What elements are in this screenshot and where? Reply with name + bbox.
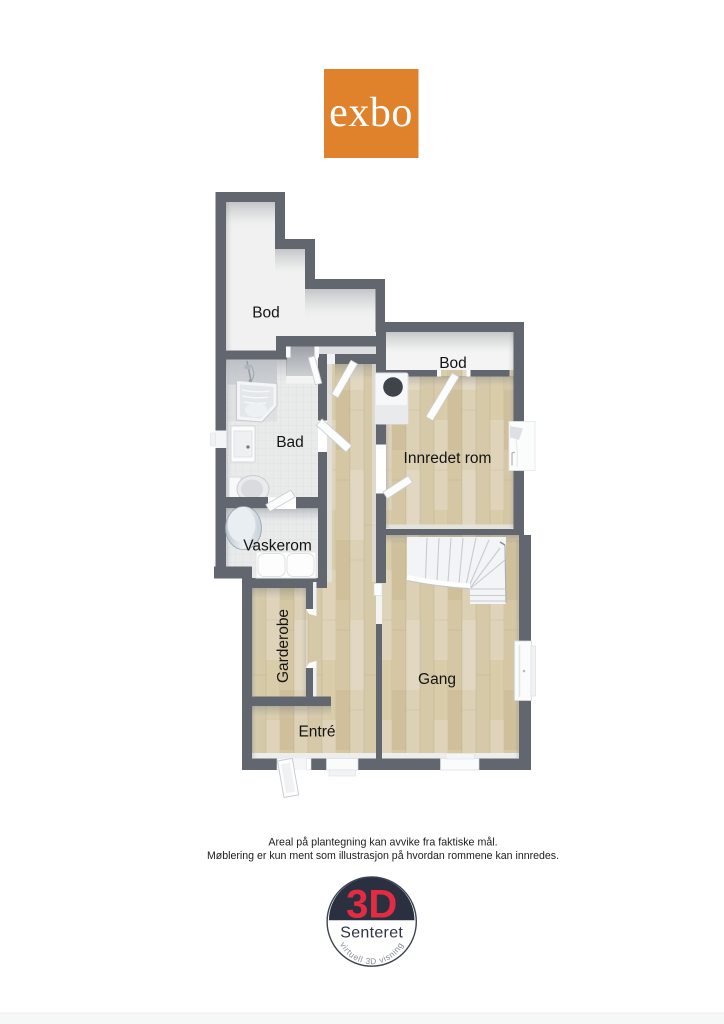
svg-text:Bod: Bod bbox=[439, 355, 467, 372]
svg-text:Entré: Entré bbox=[298, 724, 335, 741]
svg-text:3D: 3D bbox=[346, 883, 397, 927]
svg-text:Senteret: Senteret bbox=[340, 925, 403, 942]
svg-text:Bod: Bod bbox=[252, 305, 280, 322]
svg-text:exbo: exbo bbox=[329, 90, 413, 136]
svg-text:Innredet rom: Innredet rom bbox=[404, 450, 492, 467]
svg-text:Møblering er kun ment som illu: Møblering er kun ment som illustrasjon p… bbox=[207, 850, 559, 862]
svg-text:Garderobe: Garderobe bbox=[275, 609, 292, 683]
svg-text:Gang: Gang bbox=[418, 671, 456, 688]
svg-text:Vaskerom: Vaskerom bbox=[243, 538, 312, 555]
svg-text:Areal på plantegning kan avvik: Areal på plantegning kan avvike fra fakt… bbox=[268, 837, 497, 849]
svg-text:Bad: Bad bbox=[276, 434, 304, 451]
